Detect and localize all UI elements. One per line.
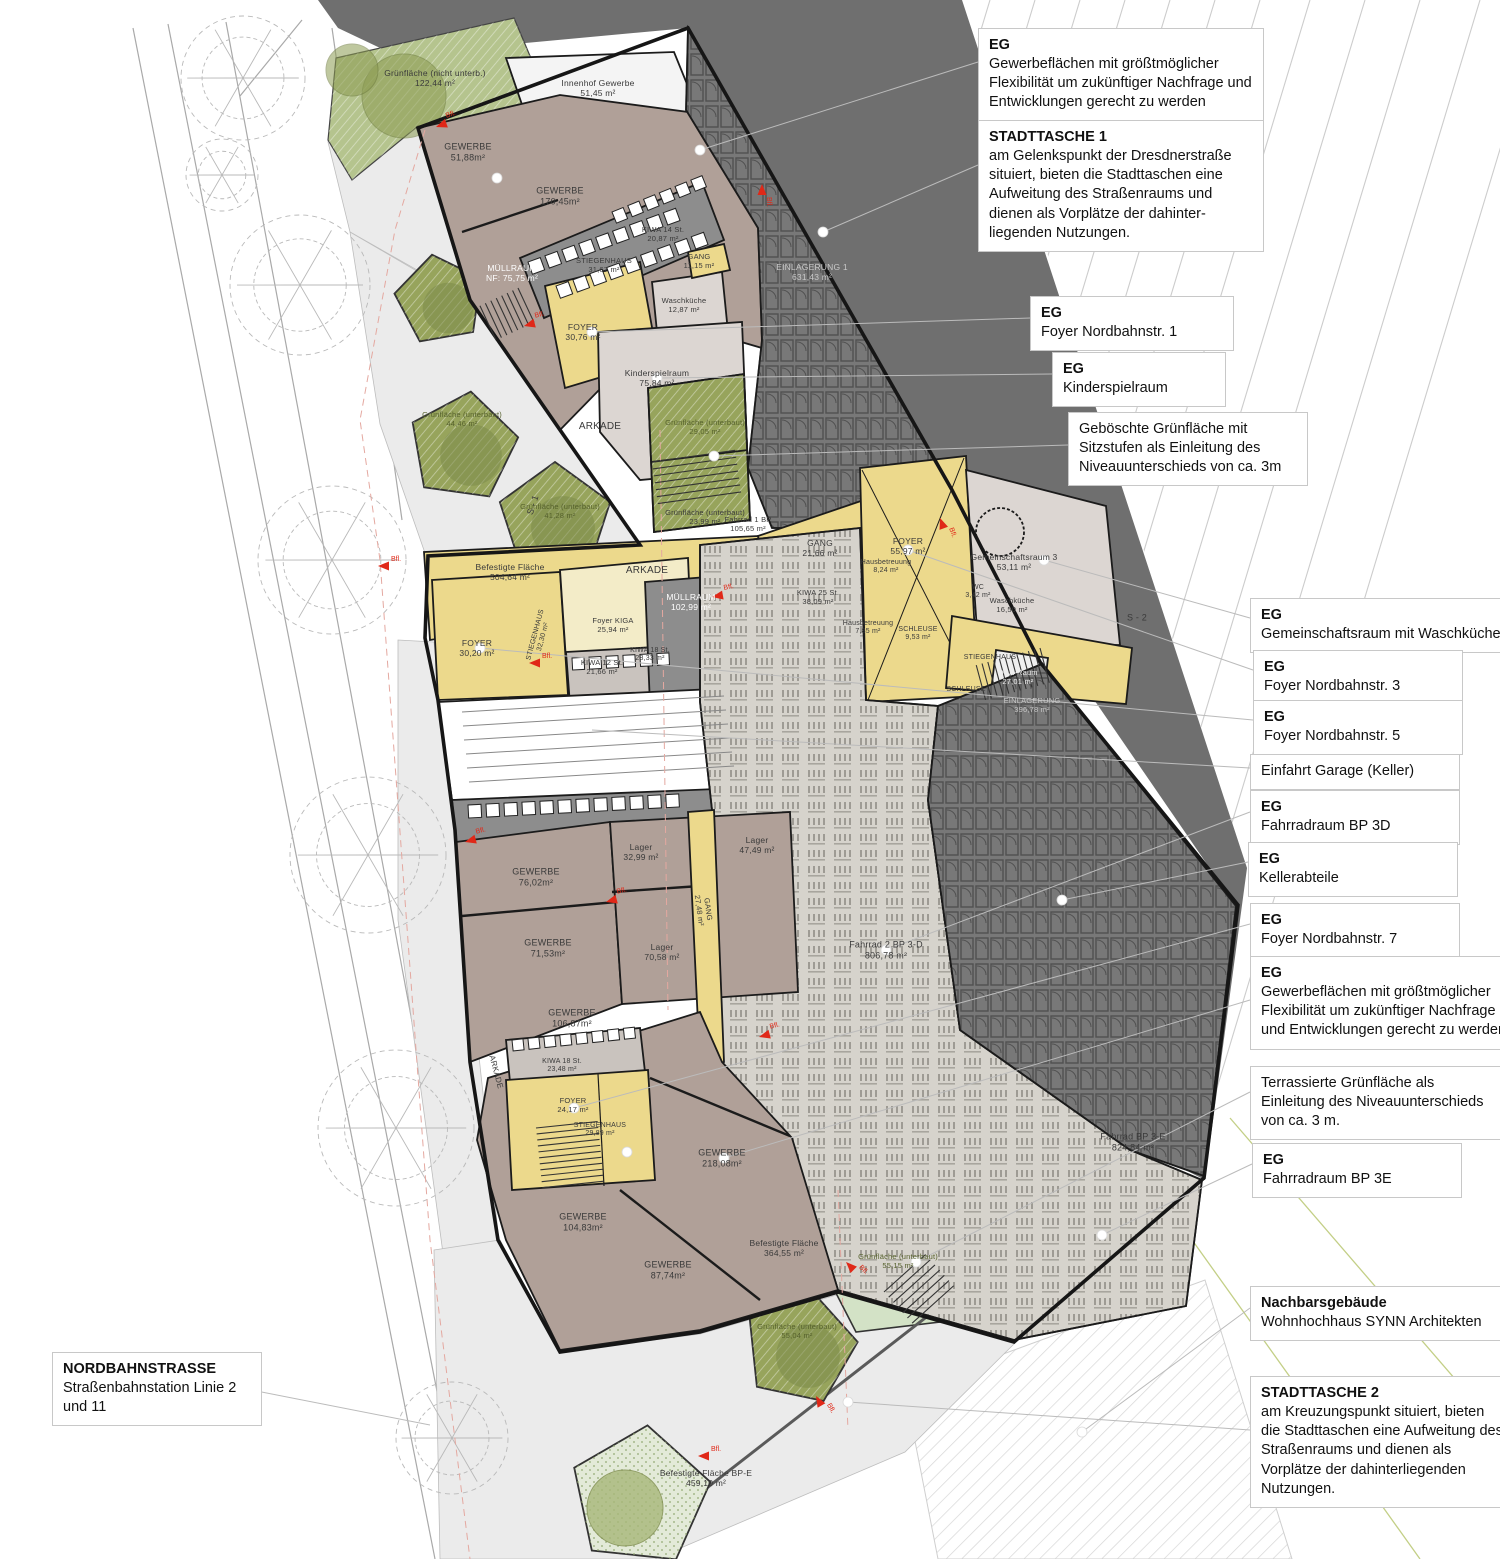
- reference-dot: [1097, 1230, 1107, 1240]
- reference-dot: [881, 945, 891, 955]
- reference-dot: [1077, 1427, 1087, 1437]
- reference-dot: [1039, 555, 1049, 565]
- reference-dot: [911, 1257, 921, 1267]
- reference-dot: [492, 173, 502, 183]
- tree-icon: [181, 16, 305, 140]
- svg-text:Bfl.: Bfl.: [711, 1446, 721, 1453]
- tree-icon: [258, 486, 406, 634]
- svg-text:Bfl.: Bfl.: [765, 197, 772, 207]
- reference-dot: [695, 145, 705, 155]
- reference-dot: [818, 227, 828, 237]
- reference-dot: [475, 643, 485, 653]
- tree-icon: [326, 44, 378, 96]
- reference-dot: [843, 1397, 853, 1407]
- reference-dot: [652, 373, 662, 383]
- reference-dot: [622, 1147, 632, 1157]
- reference-dot: [1057, 895, 1067, 905]
- reference-dot: [569, 1103, 579, 1113]
- floor-plan-drawing: Bfl.Bfl.Bfl.Bfl.Bfl.Bfl.Bfl.Bfl.Bfl.Bfl.…: [0, 0, 1500, 1559]
- svg-text:Bfl.: Bfl.: [391, 556, 401, 563]
- tree-icon: [230, 215, 370, 355]
- reference-dot: [903, 545, 913, 555]
- reference-dot: [719, 1153, 729, 1163]
- site-plan-canvas: Bfl.Bfl.Bfl.Bfl.Bfl.Bfl.Bfl.Bfl.Bfl.Bfl.…: [0, 0, 1500, 1559]
- reference-dot: [709, 451, 719, 461]
- reference-dot: [587, 327, 597, 337]
- svg-text:Bfl.: Bfl.: [542, 653, 552, 660]
- tree-icon: [186, 139, 258, 211]
- leader-line: [241, 1388, 430, 1425]
